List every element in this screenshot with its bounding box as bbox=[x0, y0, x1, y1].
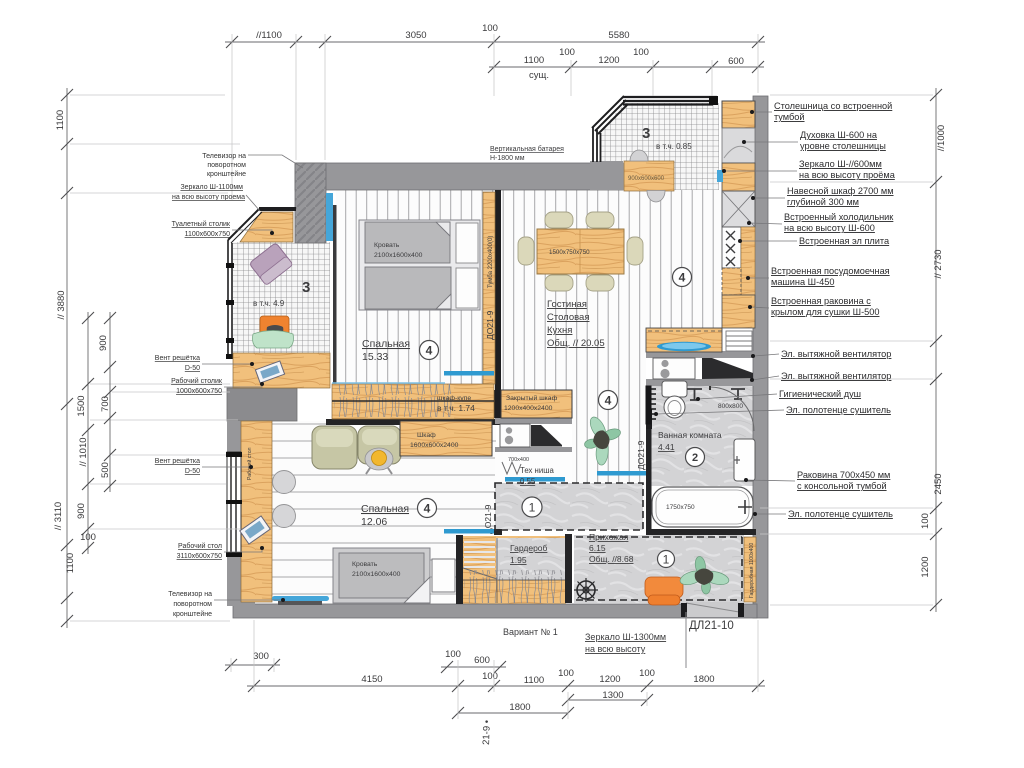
svg-text:3050: 3050 bbox=[405, 30, 426, 41]
svg-text:на всю высоту проема: на всю высоту проема bbox=[172, 194, 245, 201]
svg-text:700х400: 700х400 bbox=[508, 457, 529, 463]
svg-text:на всю высоту проёма: на всю высоту проёма bbox=[799, 170, 896, 180]
svg-text:Тех ниша: Тех ниша bbox=[520, 466, 554, 475]
svg-text:1750х750: 1750х750 bbox=[666, 504, 695, 511]
svg-text:Встроенная раковина с: Встроенная раковина с bbox=[771, 296, 871, 306]
svg-text:ДЛ21-10: ДЛ21-10 bbox=[689, 620, 734, 632]
svg-text:900х600х600: 900х600х600 bbox=[628, 176, 665, 182]
svg-text:700: 700 bbox=[100, 396, 111, 412]
svg-text:1300: 1300 bbox=[602, 690, 623, 701]
svg-text:100: 100 bbox=[558, 668, 574, 679]
svg-text:1100х600х750: 1100х600х750 bbox=[185, 231, 231, 238]
svg-text:600: 600 bbox=[728, 56, 744, 67]
svg-text:4: 4 bbox=[679, 271, 686, 285]
svg-text:Кровать: Кровать bbox=[374, 242, 400, 249]
svg-text:4: 4 bbox=[424, 502, 431, 516]
svg-text:// 3880: // 3880 bbox=[56, 290, 67, 319]
svg-text:900: 900 bbox=[76, 503, 87, 519]
svg-text:4.41: 4.41 bbox=[658, 442, 675, 452]
svg-text:Н-1800 мм: Н-1800 мм bbox=[490, 155, 525, 162]
svg-text:Духовка Ш-600 на: Духовка Ш-600 на bbox=[800, 130, 878, 140]
svg-text:уровне столешницы: уровне столешницы bbox=[800, 141, 886, 151]
svg-text:Вент решётка: Вент решётка bbox=[155, 458, 200, 465]
svg-text:Зеркало Ш-//600мм: Зеркало Ш-//600мм bbox=[799, 159, 882, 169]
svg-text:4150: 4150 bbox=[361, 674, 382, 685]
svg-text:Вариант № 1: Вариант № 1 bbox=[503, 627, 558, 637]
svg-text:кронштейне: кронштейне bbox=[173, 610, 212, 618]
svg-text:1500: 1500 bbox=[76, 395, 87, 416]
svg-text:крылом для сушки Ш-500: крылом для сушки Ш-500 bbox=[771, 307, 880, 317]
svg-text:500: 500 bbox=[100, 462, 111, 478]
svg-text:Вертикальная батарея: Вертикальная батарея bbox=[490, 145, 564, 153]
svg-text:12.06: 12.06 bbox=[361, 516, 387, 528]
svg-text:глубиной 300 мм: глубиной 300 мм bbox=[787, 197, 859, 207]
svg-text:кронштейне: кронштейне bbox=[207, 170, 246, 178]
svg-text:1800: 1800 bbox=[693, 674, 714, 685]
svg-text:300: 300 bbox=[253, 651, 269, 662]
svg-text:Зеркало Ш-1100мм: Зеркало Ш-1100мм bbox=[180, 184, 243, 191]
svg-text:Встроенная эл плита: Встроенная эл плита bbox=[799, 236, 890, 246]
svg-text:D-50: D-50 bbox=[185, 468, 200, 475]
svg-text:100: 100 bbox=[920, 513, 931, 529]
svg-text:D-50: D-50 bbox=[185, 365, 200, 372]
svg-text:Раковина 700х450 мм: Раковина 700х450 мм bbox=[797, 470, 890, 480]
svg-text:2100х1600х400: 2100х1600х400 bbox=[374, 252, 423, 259]
svg-text:3: 3 bbox=[302, 279, 310, 296]
svg-text:// 3110: // 3110 bbox=[53, 502, 64, 530]
svg-text:Эл. вытяжной вентилятор: Эл. вытяжной вентилятор bbox=[781, 371, 891, 381]
svg-text:800х800: 800х800 bbox=[718, 403, 743, 410]
svg-text:2450: 2450 bbox=[933, 473, 944, 494]
svg-text:Столешница со встроенной: Столешница со встроенной bbox=[774, 101, 892, 111]
svg-text:1200: 1200 bbox=[599, 674, 620, 685]
svg-text://1000: //1000 bbox=[936, 125, 947, 151]
svg-text:Спальная: Спальная bbox=[362, 338, 410, 350]
svg-text:Столовая: Столовая bbox=[547, 312, 589, 323]
svg-text:в т.ч. 0.85: в т.ч. 0.85 bbox=[656, 142, 692, 151]
svg-text:поворотном: поворотном bbox=[207, 162, 246, 169]
svg-text:1500х750х750: 1500х750х750 bbox=[549, 249, 590, 256]
svg-text:2100х1600х400: 2100х1600х400 bbox=[352, 571, 401, 578]
svg-text:1600х600х2400: 1600х600х2400 bbox=[410, 442, 459, 449]
svg-text:Эл. полотенце сушитель: Эл. полотенце сушитель bbox=[786, 405, 891, 415]
svg-text:1100: 1100 bbox=[65, 553, 76, 573]
svg-text:в т.ч. 4.9: в т.ч. 4.9 bbox=[253, 299, 285, 308]
svg-text:Общ. //8.68: Общ. //8.68 bbox=[589, 554, 634, 564]
svg-text:Спальная: Спальная bbox=[361, 503, 409, 515]
svg-text:Общ. // 20.05: Общ. // 20.05 bbox=[547, 338, 605, 349]
svg-text:4: 4 bbox=[605, 394, 612, 408]
svg-text://1100: //1100 bbox=[256, 30, 282, 41]
svg-text:машина Ш-450: машина Ш-450 bbox=[771, 277, 834, 287]
svg-text:Закрытый шкаф: Закрытый шкаф bbox=[506, 394, 558, 402]
svg-text:// 1010: // 1010 bbox=[78, 437, 89, 466]
svg-text:Рабочий стол: Рабочий стол bbox=[178, 542, 222, 550]
svg-text:1100: 1100 bbox=[524, 675, 544, 686]
svg-text:5580: 5580 bbox=[608, 30, 629, 41]
svg-text:в т.ч. 1.74: в т.ч. 1.74 bbox=[437, 403, 475, 413]
svg-text:3: 3 bbox=[642, 125, 650, 142]
svg-text:// 2730: // 2730 bbox=[933, 249, 944, 278]
svg-text:1200х400х2400: 1200х400х2400 bbox=[504, 405, 553, 412]
svg-text:Кровать: Кровать bbox=[352, 561, 378, 568]
svg-text:15.33: 15.33 bbox=[362, 351, 388, 363]
svg-text:Зеркало Ш-1300мм: Зеркало Ш-1300мм bbox=[585, 632, 666, 642]
svg-text:600: 600 bbox=[474, 655, 490, 666]
svg-text:1100: 1100 bbox=[524, 55, 544, 66]
svg-text:Тумба 2200х400(0): Тумба 2200х400(0) bbox=[488, 236, 494, 288]
svg-text:1000х600х750: 1000х600х750 bbox=[176, 388, 222, 395]
svg-text:3110х600х750: 3110х600х750 bbox=[177, 553, 223, 560]
svg-text:1.95: 1.95 bbox=[510, 555, 527, 565]
svg-text:6.15: 6.15 bbox=[589, 543, 606, 553]
svg-text:Туалетный столик: Туалетный столик bbox=[172, 220, 231, 228]
svg-text:Встроенная посудомоечная: Встроенная посудомоечная bbox=[771, 266, 890, 276]
svg-text:Кухня: Кухня bbox=[547, 325, 572, 336]
svg-text:1200: 1200 bbox=[598, 55, 619, 66]
svg-text:Гардероб: Гардероб bbox=[510, 543, 548, 553]
svg-text:0.55: 0.55 bbox=[520, 477, 536, 486]
svg-text:Эл. полотенце сушитель: Эл. полотенце сушитель bbox=[788, 509, 893, 519]
svg-text:1800: 1800 bbox=[509, 702, 530, 713]
svg-text:100: 100 bbox=[633, 47, 649, 58]
svg-text:ДО21-9: ДО21-9 bbox=[636, 440, 646, 470]
svg-text:с консольной тумбой: с консольной тумбой bbox=[797, 481, 887, 491]
svg-text:Встроенный холодильник: Встроенный холодильник bbox=[784, 212, 894, 222]
svg-text:100: 100 bbox=[639, 668, 655, 679]
svg-text:поворотном: поворотном bbox=[173, 601, 212, 608]
svg-text:Рабочий стол: Рабочий стол bbox=[246, 447, 253, 480]
svg-text:Рабочий столик: Рабочий столик bbox=[171, 377, 223, 385]
svg-text:Гостиная: Гостиная bbox=[547, 299, 587, 310]
svg-text:100: 100 bbox=[445, 649, 461, 660]
svg-text:Гардеробная 1100х400: Гардеробная 1100х400 bbox=[749, 543, 755, 598]
svg-text:Ванная комната: Ванная комната bbox=[658, 430, 722, 440]
svg-text:Гигиенический душ: Гигиенический душ bbox=[779, 389, 861, 399]
svg-text:Навесной шкаф 2700 мм: Навесной шкаф 2700 мм bbox=[787, 186, 894, 196]
svg-text:Вент решётка: Вент решётка bbox=[155, 355, 200, 362]
svg-text:1: 1 bbox=[529, 501, 536, 515]
svg-text:Эл. вытяжной вентилятор: Эл. вытяжной вентилятор bbox=[781, 349, 891, 359]
svg-text:100: 100 bbox=[482, 671, 498, 682]
svg-text:2: 2 bbox=[692, 452, 698, 464]
svg-text:тумбой: тумбой bbox=[774, 112, 805, 122]
svg-text:Телевизор на: Телевизор на bbox=[202, 153, 246, 160]
svg-text:Шкаф: Шкаф bbox=[417, 432, 436, 439]
svg-text:100: 100 bbox=[559, 47, 575, 58]
svg-text:Прихожая: Прихожая bbox=[589, 532, 629, 542]
svg-text:ДО21-9: ДО21-9 bbox=[485, 310, 495, 340]
svg-text:на всю высоту: на всю высоту bbox=[585, 644, 646, 654]
svg-text:1: 1 bbox=[663, 553, 670, 567]
svg-text:1200: 1200 bbox=[920, 556, 931, 577]
svg-text:шкаф-купе: шкаф-купе bbox=[437, 395, 471, 402]
svg-text:900: 900 bbox=[98, 335, 109, 351]
svg-text:на всю высоту Ш-600: на всю высоту Ш-600 bbox=[784, 223, 875, 233]
svg-text:1100: 1100 bbox=[55, 110, 66, 130]
svg-text:Телевизор на: Телевизор на bbox=[168, 591, 212, 598]
svg-text:100: 100 bbox=[80, 532, 96, 543]
svg-text:4: 4 bbox=[426, 344, 433, 358]
svg-text:сущ.: сущ. bbox=[529, 70, 549, 81]
svg-text:100: 100 bbox=[482, 23, 498, 34]
svg-text:21-9 •: 21-9 • bbox=[481, 720, 493, 745]
